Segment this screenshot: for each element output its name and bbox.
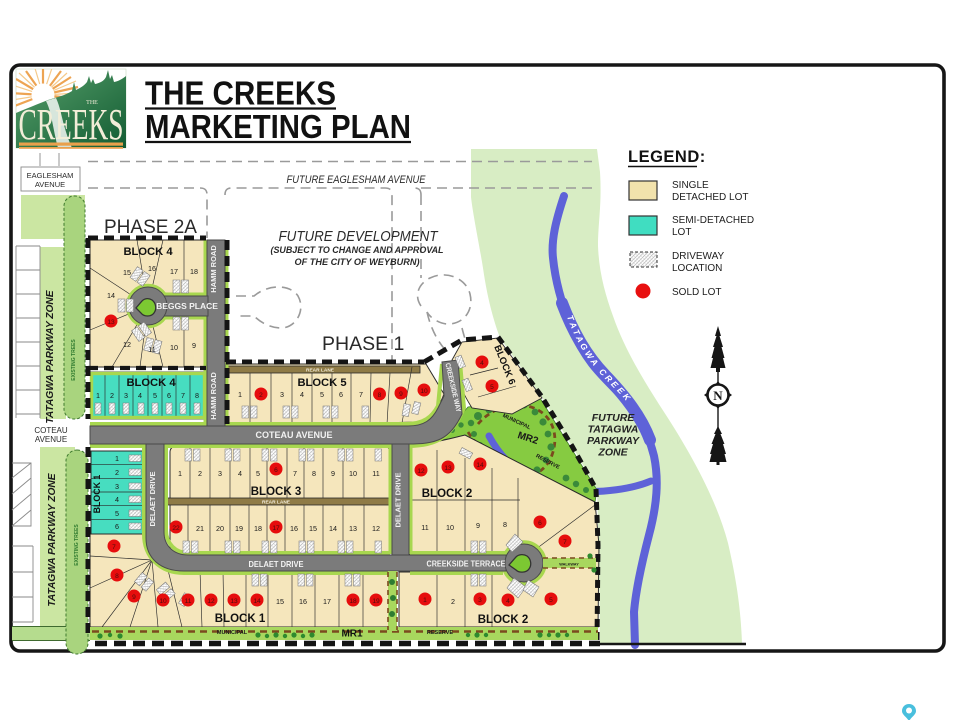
svg-text:3: 3	[280, 390, 284, 399]
svg-text:5: 5	[320, 390, 324, 399]
svg-text:CREEKS: CREEKS	[19, 100, 124, 149]
svg-text:18: 18	[349, 598, 357, 605]
svg-text:3: 3	[124, 391, 128, 400]
svg-text:3: 3	[115, 482, 119, 491]
svg-text:19: 19	[372, 598, 380, 605]
svg-text:8: 8	[195, 391, 199, 400]
svg-text:1: 1	[178, 469, 182, 478]
svg-text:COTEAU AVENUE: COTEAU AVENUE	[256, 430, 333, 441]
svg-text:LOCATION: LOCATION	[672, 263, 722, 274]
svg-text:4: 4	[300, 390, 304, 399]
svg-text:13: 13	[107, 319, 115, 326]
svg-text:BEGGS PLACE: BEGGS PLACE	[156, 301, 218, 311]
svg-text:19: 19	[235, 524, 243, 533]
svg-text:4: 4	[138, 391, 142, 400]
svg-text:15: 15	[276, 597, 284, 606]
svg-text:4: 4	[238, 469, 242, 478]
svg-text:BLOCK 3: BLOCK 3	[251, 486, 301, 498]
svg-text:6: 6	[274, 467, 278, 474]
svg-text:12: 12	[417, 468, 425, 475]
svg-text:9: 9	[331, 469, 335, 478]
svg-text:10: 10	[349, 469, 357, 478]
svg-text:16: 16	[148, 264, 156, 273]
svg-text:22: 22	[172, 525, 180, 532]
svg-text:6: 6	[167, 391, 171, 400]
svg-text:5: 5	[490, 384, 494, 391]
svg-text:DELAET DRIVE: DELAET DRIVE	[394, 472, 403, 527]
svg-text:2: 2	[115, 468, 119, 477]
svg-text:2: 2	[198, 469, 202, 478]
svg-text:EXISTING TREES: EXISTING TREES	[74, 524, 80, 566]
svg-text:10: 10	[420, 388, 428, 395]
svg-text:5: 5	[115, 509, 119, 518]
svg-text:REAR LANE: REAR LANE	[262, 500, 291, 506]
svg-text:SOLD LOT: SOLD LOT	[672, 287, 721, 298]
svg-text:20: 20	[216, 524, 224, 533]
svg-text:6: 6	[339, 390, 343, 399]
svg-text:TATAGWA PARKWAY ZONE: TATAGWA PARKWAY ZONE	[47, 472, 58, 606]
svg-text:14: 14	[107, 291, 115, 300]
svg-text:FUTURE EAGLESHAM AVENUE: FUTURE EAGLESHAM AVENUE	[287, 174, 427, 186]
svg-text:11: 11	[148, 345, 155, 354]
svg-text:BLOCK 4: BLOCK 4	[126, 377, 176, 389]
svg-text:15: 15	[309, 524, 317, 533]
svg-text:5: 5	[256, 469, 260, 478]
svg-text:11: 11	[185, 598, 192, 605]
svg-text:10: 10	[170, 343, 178, 352]
svg-text:12: 12	[123, 340, 131, 349]
svg-text:7: 7	[563, 539, 567, 546]
svg-text:HAMM ROAD: HAMM ROAD	[209, 372, 218, 420]
svg-text:18: 18	[254, 524, 262, 533]
svg-text:ZONE: ZONE	[597, 447, 628, 459]
svg-text:17: 17	[272, 525, 280, 532]
svg-text:PHASE 2A: PHASE 2A	[104, 217, 197, 238]
svg-text:CREEKSIDE TERRACE: CREEKSIDE TERRACE	[427, 560, 507, 569]
svg-text:13: 13	[444, 465, 452, 472]
svg-text:8: 8	[378, 392, 382, 399]
svg-text:DETACHED LOT: DETACHED LOT	[672, 192, 749, 203]
svg-text:PHASE 1: PHASE 1	[322, 333, 404, 355]
svg-text:9: 9	[192, 341, 196, 350]
svg-text:BLOCK 5: BLOCK 5	[297, 377, 346, 389]
svg-text:DELAET DRIVE: DELAET DRIVE	[148, 471, 157, 526]
svg-text:8: 8	[503, 520, 507, 529]
svg-text:BLOCK 1: BLOCK 1	[92, 475, 102, 514]
svg-text:PARKWAY: PARKWAY	[587, 435, 640, 447]
svg-text:TATAGWA: TATAGWA	[588, 424, 639, 436]
svg-text:FUTURE: FUTURE	[592, 412, 636, 424]
svg-text:17: 17	[323, 597, 331, 606]
svg-text:BLOCK 2: BLOCK 2	[478, 614, 528, 626]
svg-text:16: 16	[299, 597, 307, 606]
svg-text:THE CREEKS: THE CREEKS	[145, 75, 336, 112]
svg-text:17: 17	[170, 267, 178, 276]
svg-text:TATAGWA PARKWAY ZONE: TATAGWA PARKWAY ZONE	[45, 289, 56, 423]
svg-text:9: 9	[132, 594, 136, 601]
svg-text:7: 7	[181, 391, 185, 400]
svg-text:15: 15	[123, 268, 131, 277]
svg-text:18: 18	[190, 267, 198, 276]
svg-text:EXISTING TREES: EXISTING TREES	[71, 339, 77, 381]
svg-text:14: 14	[253, 598, 261, 605]
svg-text:12: 12	[372, 524, 380, 533]
svg-text:14: 14	[476, 462, 484, 469]
svg-text:2: 2	[110, 391, 114, 400]
svg-text:3: 3	[218, 469, 222, 478]
svg-text:SINGLE: SINGLE	[672, 180, 709, 191]
svg-text:BLOCK 2: BLOCK 2	[422, 488, 472, 500]
svg-text:14: 14	[329, 524, 337, 533]
svg-text:8: 8	[312, 469, 316, 478]
svg-text:4: 4	[506, 598, 510, 605]
svg-text:HAMM ROAD: HAMM ROAD	[209, 245, 218, 293]
svg-text:MR1: MR1	[341, 629, 363, 640]
svg-text:LEGEND:: LEGEND:	[628, 148, 706, 166]
svg-text:1: 1	[423, 597, 427, 604]
svg-text:SEMI-DETACHED: SEMI-DETACHED	[672, 215, 754, 226]
svg-text:5: 5	[153, 391, 157, 400]
svg-text:WALKWAY: WALKWAY	[559, 563, 579, 567]
svg-text:THE: THE	[86, 100, 98, 106]
svg-text:12: 12	[207, 598, 215, 605]
svg-text:7: 7	[293, 469, 297, 478]
svg-text:BLOCK 1: BLOCK 1	[215, 613, 266, 625]
svg-text:3: 3	[478, 597, 482, 604]
svg-text:1: 1	[96, 391, 100, 400]
svg-text:COTEAU: COTEAU	[34, 426, 68, 435]
svg-text:10: 10	[159, 598, 167, 605]
svg-text:9: 9	[399, 391, 403, 398]
svg-text:LOT: LOT	[672, 227, 691, 238]
svg-text:DELAET DRIVE: DELAET DRIVE	[249, 559, 304, 569]
svg-text:9: 9	[476, 521, 480, 530]
svg-text:21: 21	[196, 524, 204, 533]
svg-text:10: 10	[446, 523, 454, 532]
svg-text:4: 4	[115, 495, 119, 504]
svg-text:BLOCK 4: BLOCK 4	[123, 246, 173, 258]
svg-text:13: 13	[349, 524, 357, 533]
svg-text:4: 4	[480, 360, 484, 367]
svg-text:2: 2	[259, 392, 263, 399]
svg-text:(SUBJECT TO CHANGE AND APPROVA: (SUBJECT TO CHANGE AND APPROVAL	[271, 245, 444, 255]
svg-text:AVENUE: AVENUE	[35, 435, 67, 444]
svg-text:DRIVEWAY: DRIVEWAY	[672, 251, 725, 262]
svg-text:6: 6	[538, 520, 542, 527]
svg-text:1: 1	[238, 390, 242, 399]
svg-text:MARKETING PLAN: MARKETING PLAN	[145, 108, 411, 145]
svg-text:RESERVE: RESERVE	[427, 630, 454, 636]
svg-text:MUNICIPAL: MUNICIPAL	[217, 630, 248, 636]
svg-text:8: 8	[115, 573, 119, 580]
svg-text:2: 2	[451, 597, 455, 606]
svg-text:6: 6	[115, 522, 119, 531]
svg-text:16: 16	[290, 524, 298, 533]
svg-text:EAGLESHAM: EAGLESHAM	[27, 171, 74, 180]
svg-text:11: 11	[421, 523, 428, 532]
svg-text:11: 11	[372, 469, 379, 478]
svg-text:5: 5	[549, 597, 553, 604]
svg-text:1: 1	[115, 454, 119, 463]
svg-text:N: N	[713, 388, 723, 403]
svg-text:AVENUE: AVENUE	[35, 180, 65, 189]
svg-text:7: 7	[359, 390, 363, 399]
svg-text:7: 7	[112, 544, 116, 551]
svg-text:13: 13	[230, 598, 238, 605]
svg-text:FUTURE DEVELOPMENT: FUTURE DEVELOPMENT	[279, 228, 440, 245]
svg-text:OF THE CITY OF WEYBURN): OF THE CITY OF WEYBURN)	[295, 257, 420, 267]
svg-text:REAR LANE: REAR LANE	[306, 368, 335, 374]
